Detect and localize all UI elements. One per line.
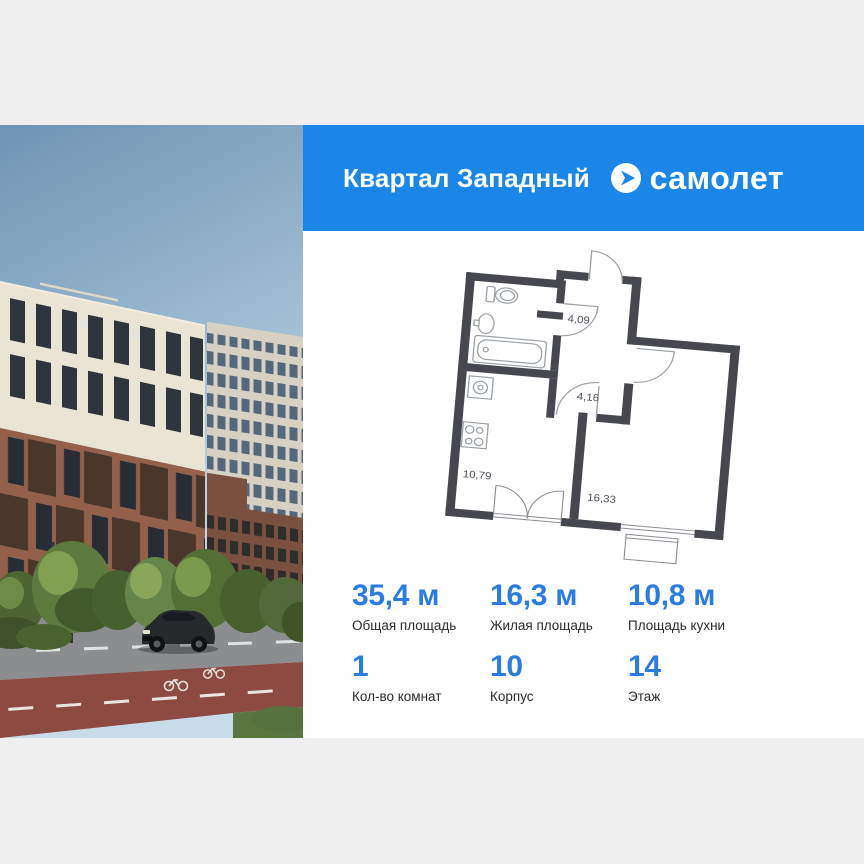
stat-label: Корпус [490,689,628,704]
samolet-arrow-icon [611,163,641,193]
building-photo [0,125,303,738]
stats-grid: 35,4 м Общая площадь 16,3 м Жилая площад… [352,581,766,704]
entrance-door-arc [589,251,624,283]
samolet-logo: самолет [611,160,784,197]
floor-plan-drawing: 4,09 4,16 10,79 16,33 [418,237,768,572]
header-bar: Квартал Западный самолет [303,125,864,231]
area-label-kitchen: 10,79 [462,469,492,483]
headlight [143,630,150,634]
stat-living-area: 16,3 м Жилая площадь [490,581,628,633]
area-label-corridor: 4,16 [576,391,599,404]
area-label-hallway: 4,09 [567,313,590,326]
samolet-wordmark: самолет [650,160,784,197]
stat-building: 10 Корпус [490,652,628,704]
stat-value: 1 [352,652,490,682]
photo-illustration [0,125,303,738]
stat-label: Площадь кухни [628,618,766,633]
content-area: Квартал Западный самолет [0,125,864,738]
stat-value: 35,4 м [352,581,490,611]
stat-value: 16,3 м [490,581,628,611]
stat-label: Общая площадь [352,618,490,633]
living-door-arc [633,348,674,385]
area-label-living-room: 16,33 [587,492,617,506]
floor-plan: 4,09 4,16 10,79 16,33 [418,237,768,572]
info-card: Квартал Западный самолет [303,125,864,738]
toilet-icon [486,286,518,304]
stat-value: 10 [490,652,628,682]
stat-label: Кол-во комнат [352,689,490,704]
stat-total-area: 35,4 м Общая площадь [352,581,490,633]
stat-value: 14 [628,652,766,682]
project-title: Квартал Западный [343,163,590,194]
sink-icon [473,313,495,334]
stove-icon [461,422,488,449]
stat-label: Этаж [628,689,766,704]
washing-machine-icon [468,376,494,399]
stat-floor: 14 Этаж [628,652,766,704]
stat-label: Жилая площадь [490,618,628,633]
stat-kitchen-area: 10,8 м Площадь кухни [628,581,766,633]
listing-image-canvas: Квартал Западный самолет [0,0,864,864]
bathtub-icon [473,335,547,368]
stat-rooms: 1 Кол-во комнат [352,652,490,704]
stat-value: 10,8 м [628,581,766,611]
area-labels: 4,09 4,16 10,79 16,33 [461,306,632,506]
